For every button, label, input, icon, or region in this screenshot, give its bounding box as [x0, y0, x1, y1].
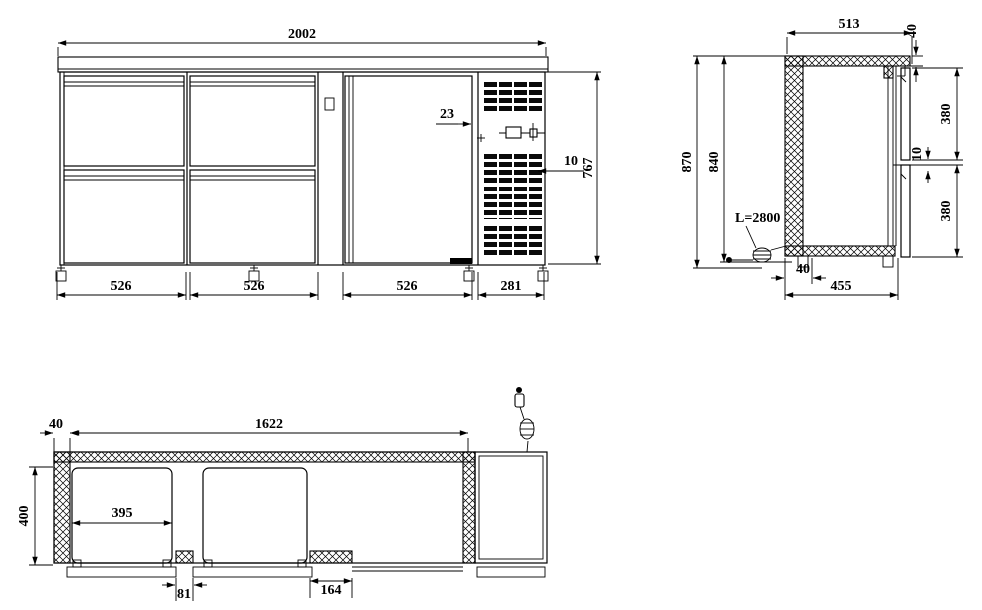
- interior-lines: [803, 66, 905, 246]
- dim-label-overall-height: 870: [680, 152, 695, 173]
- mullion-pillar: [318, 72, 343, 265]
- dim-foot-offset: 40: [771, 258, 826, 300]
- louver-group: [484, 223, 542, 256]
- dim-label-col1: 526: [111, 279, 132, 294]
- door-panel: [345, 76, 472, 264]
- side-section-view: 513 40: [680, 17, 963, 300]
- power-switch-symbol: [499, 123, 545, 141]
- dim-label-wall: 40: [49, 417, 63, 432]
- dim-label-col3: 526: [397, 279, 418, 294]
- foot: [464, 265, 474, 281]
- dim-door-gap: 23: [436, 107, 471, 124]
- plan-section-view: 40 1622 395 400: [17, 387, 547, 602]
- dim-label-gap-small: 81: [177, 587, 191, 602]
- louver-group: [484, 187, 542, 219]
- dim-drawer-opening: 395: [72, 506, 172, 523]
- plug-icon: [515, 394, 524, 407]
- power-cord-plan: [515, 387, 534, 452]
- foot: [883, 256, 893, 267]
- lock-plate: [325, 98, 334, 110]
- drawer-front-top-1: [67, 567, 176, 577]
- dim-upper-drawer: 380: [912, 68, 963, 160]
- front-view: 2002: [56, 27, 601, 300]
- insulated-bottom: [785, 246, 895, 256]
- dim-front-total-width: 2002: [58, 27, 546, 56]
- compressor-front-strip: [477, 567, 545, 577]
- dim-label-lower-drawer: 380: [939, 201, 954, 222]
- dim-label-grille: 10: [564, 154, 578, 169]
- door-bottom-bracket: [450, 258, 472, 264]
- dim-label-depth: 513: [839, 17, 860, 32]
- foot: [56, 265, 66, 281]
- mullion-block-small: [176, 551, 193, 563]
- foot: [538, 265, 548, 281]
- drawer-front-profile-lower: [901, 165, 910, 257]
- technical-drawing-canvas: 2002: [0, 0, 982, 610]
- power-cord-side: L=2800: [726, 211, 786, 263]
- drawer-front: [64, 170, 184, 263]
- dim-gap-large: 164: [310, 578, 352, 598]
- dim-label-foot-offset: 40: [796, 262, 810, 277]
- dim-lower-drawer: 380: [912, 165, 963, 257]
- dim-label-drawer-gap: 10: [910, 147, 925, 161]
- leader-line: [746, 226, 756, 248]
- drawer-front: [64, 76, 184, 166]
- drawer-stack-left: [64, 76, 184, 263]
- dim-front-sections: 526 526 526 281: [57, 272, 544, 300]
- drawer-stack-middle: [190, 76, 315, 263]
- dim-label-col2: 526: [244, 279, 265, 294]
- dim-case-height: 840: [707, 56, 792, 262]
- dim-label-drawer-opening: 395: [112, 506, 133, 521]
- insulated-left-wall: [54, 452, 70, 563]
- insulated-front-edge: [884, 66, 893, 78]
- dim-label-inner-depth: 400: [17, 506, 32, 527]
- dim-inner-depth: 400: [17, 467, 53, 565]
- louver-group: [484, 82, 542, 112]
- dim-label-gap-large: 164: [321, 583, 342, 598]
- dim-label-inner-width: 1622: [255, 417, 283, 432]
- dim-drawer-gap: 10: [893, 147, 963, 183]
- drawer-box-opening-2: [203, 468, 307, 567]
- dim-overall-height: 870: [680, 56, 788, 268]
- mullion-block-large: [310, 551, 352, 563]
- plug-icon: [726, 257, 732, 263]
- dim-label-total-width: 2002: [288, 27, 316, 42]
- dim-label-case-height: 840: [707, 152, 722, 173]
- insulated-top: [785, 56, 910, 66]
- dim-gap-small: 81: [162, 578, 207, 602]
- drawer-front: [190, 76, 315, 166]
- insulated-back-wall: [785, 56, 803, 256]
- vent-grille-panel: [477, 72, 545, 265]
- dim-label-height: 767: [581, 158, 596, 179]
- dim-label-upper-drawer: 380: [939, 104, 954, 125]
- dim-label-base-depth: 455: [831, 279, 852, 294]
- dim-label-vent: 281: [501, 279, 522, 294]
- cable-length-label: L=2800: [735, 211, 780, 226]
- insulated-partition: [463, 452, 475, 563]
- louver-group: [484, 152, 542, 184]
- compressor-compartment: [475, 452, 547, 563]
- insulated-back: [54, 452, 475, 462]
- worktop: [58, 57, 548, 72]
- dim-inner-width: 1622: [70, 417, 468, 452]
- dim-label-worktop: 40: [905, 24, 920, 38]
- drawer-front-top-2: [193, 567, 312, 577]
- technical-drawing-page: 2002: [0, 0, 982, 610]
- dim-label-door-gap: 23: [440, 107, 454, 122]
- drawer-front-profile-upper: [901, 68, 910, 160]
- drawer-front: [190, 170, 315, 263]
